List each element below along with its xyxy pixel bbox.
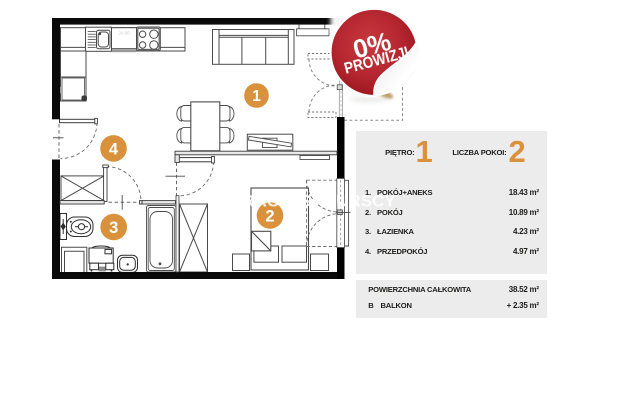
svg-text:3: 3 [109, 219, 118, 237]
svg-text:1: 1 [252, 88, 261, 105]
svg-text:JA 60: JA 60 [118, 31, 130, 36]
svg-text:4: 4 [109, 141, 119, 159]
svg-text:2: 2 [265, 208, 274, 226]
